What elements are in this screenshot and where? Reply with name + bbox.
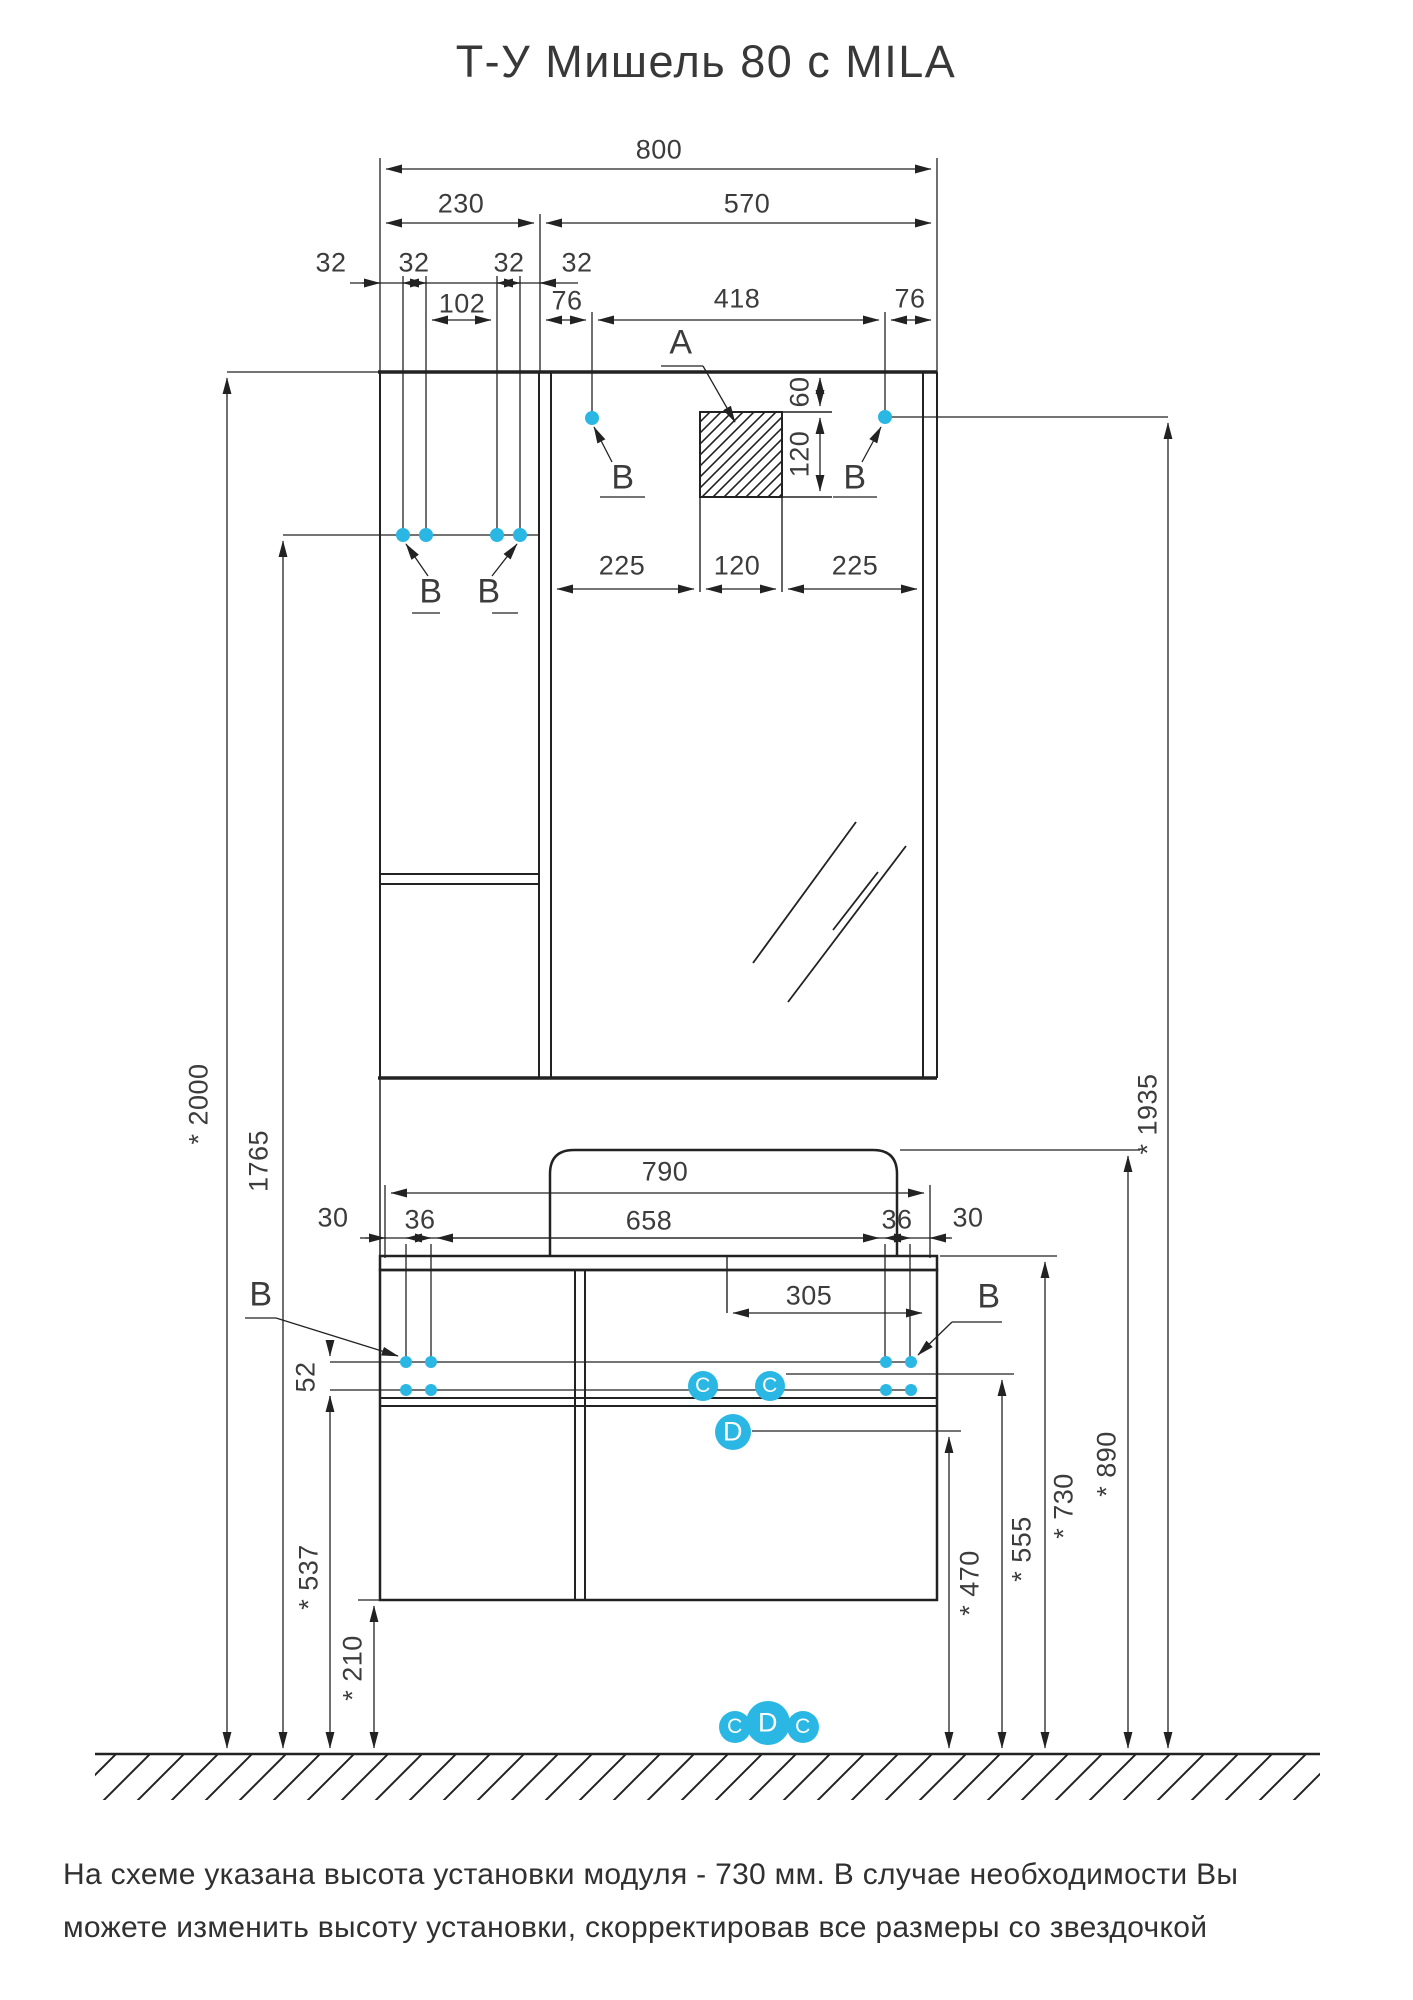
marker-a-label: A: [669, 324, 692, 363]
dim-height-top: * 890: [1092, 1431, 1123, 1497]
dim-total-width: 800: [636, 135, 683, 166]
installation-note-line-2: можете изменить высоту установки, скорре…: [63, 1911, 1207, 1945]
dim-hole-offset-3: 32: [493, 248, 524, 279]
floor-hatch: [95, 1754, 1320, 1800]
technical-drawing-page: Т-У Мишель 80 с MILA 800 230 570 32 32 3…: [0, 0, 1413, 2000]
marker-b-vanity-left: B: [249, 1276, 272, 1315]
dim-basin-hole-span: 658: [626, 1206, 673, 1237]
drawing-canvas: [0, 0, 1413, 2000]
marker-b-cabinet-left: B: [419, 573, 442, 612]
dim-mirror-hole-right: 76: [894, 284, 925, 315]
dim-row-gap: 52: [291, 1361, 322, 1392]
marker-b-cabinet-right: B: [477, 573, 500, 612]
dim-height-upper-holes: 1765: [244, 1130, 275, 1192]
dim-basin-edge-4: 30: [952, 1203, 983, 1234]
dimension-lines: [227, 158, 1168, 1748]
dim-basin-edge-3: 36: [881, 1205, 912, 1236]
dim-basin-edge-1: 30: [317, 1203, 348, 1234]
dim-basin-edge-2: 36: [404, 1205, 435, 1236]
dim-top-width: 790: [642, 1157, 689, 1188]
dim-height-mirror-holes: * 1935: [1133, 1073, 1164, 1154]
dim-height-module: * 730: [1049, 1473, 1080, 1539]
marker-c-hole-right: C: [762, 1374, 778, 1398]
dim-hole-offset-1: 32: [315, 248, 346, 279]
dim-hole-offset-4: 32: [561, 248, 592, 279]
marker-c-hole-left: C: [695, 1374, 711, 1398]
page-title: Т-У Мишель 80 с MILA: [456, 36, 957, 88]
dim-height-lower-holes: * 537: [294, 1544, 325, 1610]
upper-unit-outline: [378, 372, 937, 1256]
dim-cabinet-width: 230: [438, 189, 485, 220]
dim-recess-right: 225: [832, 551, 879, 582]
dim-hole-span: 102: [439, 289, 486, 320]
dim-recess-width: 120: [714, 551, 761, 582]
dim-drain-offset: 305: [786, 1281, 833, 1312]
installation-note-line-1: На схеме указана высота установки модуля…: [63, 1858, 1238, 1892]
dim-recess-offset-top: 60: [785, 376, 816, 407]
basin-outline: [550, 1150, 897, 1313]
marker-c-floor-left: C: [727, 1715, 743, 1739]
vanity-outline: [330, 1256, 937, 1600]
dim-height-d: * 470: [955, 1550, 986, 1616]
dim-height-total: * 2000: [184, 1063, 215, 1144]
marker-b-vanity-right: B: [977, 1278, 1000, 1317]
dim-mirror-hole-span: 418: [714, 284, 761, 315]
dim-recess-left: 225: [599, 551, 646, 582]
dim-mirror-width: 570: [724, 189, 771, 220]
marker-d-hole: D: [723, 1417, 743, 1448]
dim-mirror-hole-left: 76: [551, 286, 582, 317]
dim-height-clearance: * 210: [338, 1635, 369, 1701]
marker-d-floor: D: [758, 1708, 778, 1739]
marker-c-floor-right: C: [795, 1715, 811, 1739]
dim-height-c: * 555: [1007, 1516, 1038, 1582]
marker-b-mirror-left: B: [611, 459, 634, 498]
dim-hole-offset-2: 32: [398, 248, 429, 279]
marker-b-mirror-right: B: [843, 459, 866, 498]
mirror-glass-marks: [753, 822, 906, 1002]
marker-circles: [688, 1371, 819, 1745]
dim-recess-height: 120: [785, 431, 816, 478]
